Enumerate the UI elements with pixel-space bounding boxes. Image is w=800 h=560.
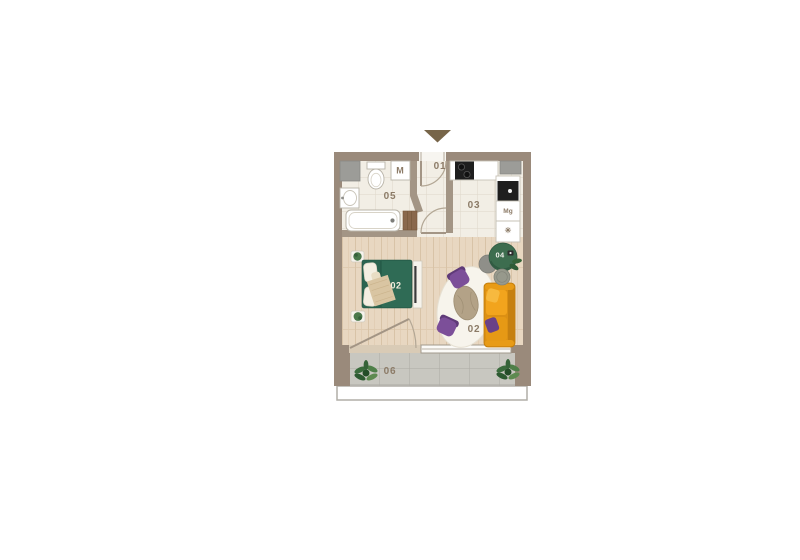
bathtub — [346, 210, 400, 231]
nightstand-plant — [354, 312, 363, 321]
entrance-arrow-icon — [424, 130, 451, 143]
kitchen-shaft — [500, 161, 521, 174]
entrance-opening — [419, 152, 446, 161]
sofa — [484, 283, 515, 347]
kitchen-sink — [498, 181, 519, 201]
label-kitchen: 03 — [468, 201, 481, 211]
label-bathroom: 05 — [384, 192, 397, 202]
cooktop — [455, 162, 474, 180]
label-fridge: Mg — [503, 209, 512, 216]
label-washing-machine: M — [396, 167, 404, 176]
bathroom-sink — [340, 188, 359, 208]
side-table — [494, 269, 510, 285]
label-reading-corner: 04 — [496, 251, 505, 259]
balcony-railing — [337, 386, 527, 400]
label-balcony: 06 — [384, 367, 397, 377]
label-bedroom-area: 02 — [390, 282, 401, 291]
balcony-door-threshold — [349, 345, 421, 353]
label-living-area: 02 — [468, 325, 481, 335]
floor-plan-canvas: 01 M 05 03 Mg ✳ 02 02 04 06 — [0, 0, 800, 560]
shaft-column — [340, 161, 360, 181]
bed — [362, 260, 412, 308]
label-hallway: 01 — [434, 162, 447, 172]
marker-icon — [508, 251, 514, 256]
tv-console — [413, 261, 422, 308]
label-freezer: ✳ — [505, 227, 512, 235]
nightstand-plant — [353, 252, 361, 260]
bathroom-door-threshold — [403, 211, 417, 230]
toilet — [367, 162, 385, 189]
